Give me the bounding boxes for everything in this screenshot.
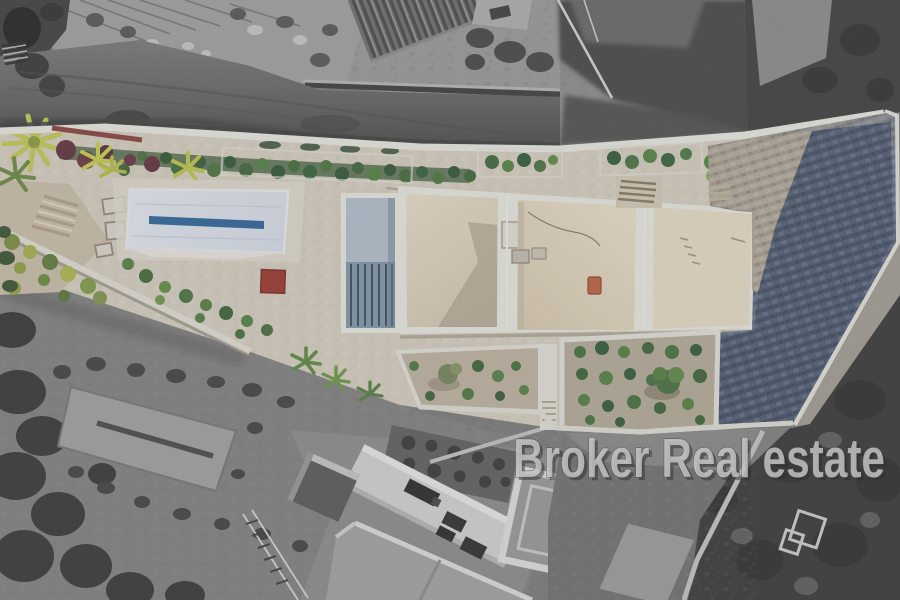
svg-text:Broker Real estate: Broker Real estate — [513, 427, 885, 489]
